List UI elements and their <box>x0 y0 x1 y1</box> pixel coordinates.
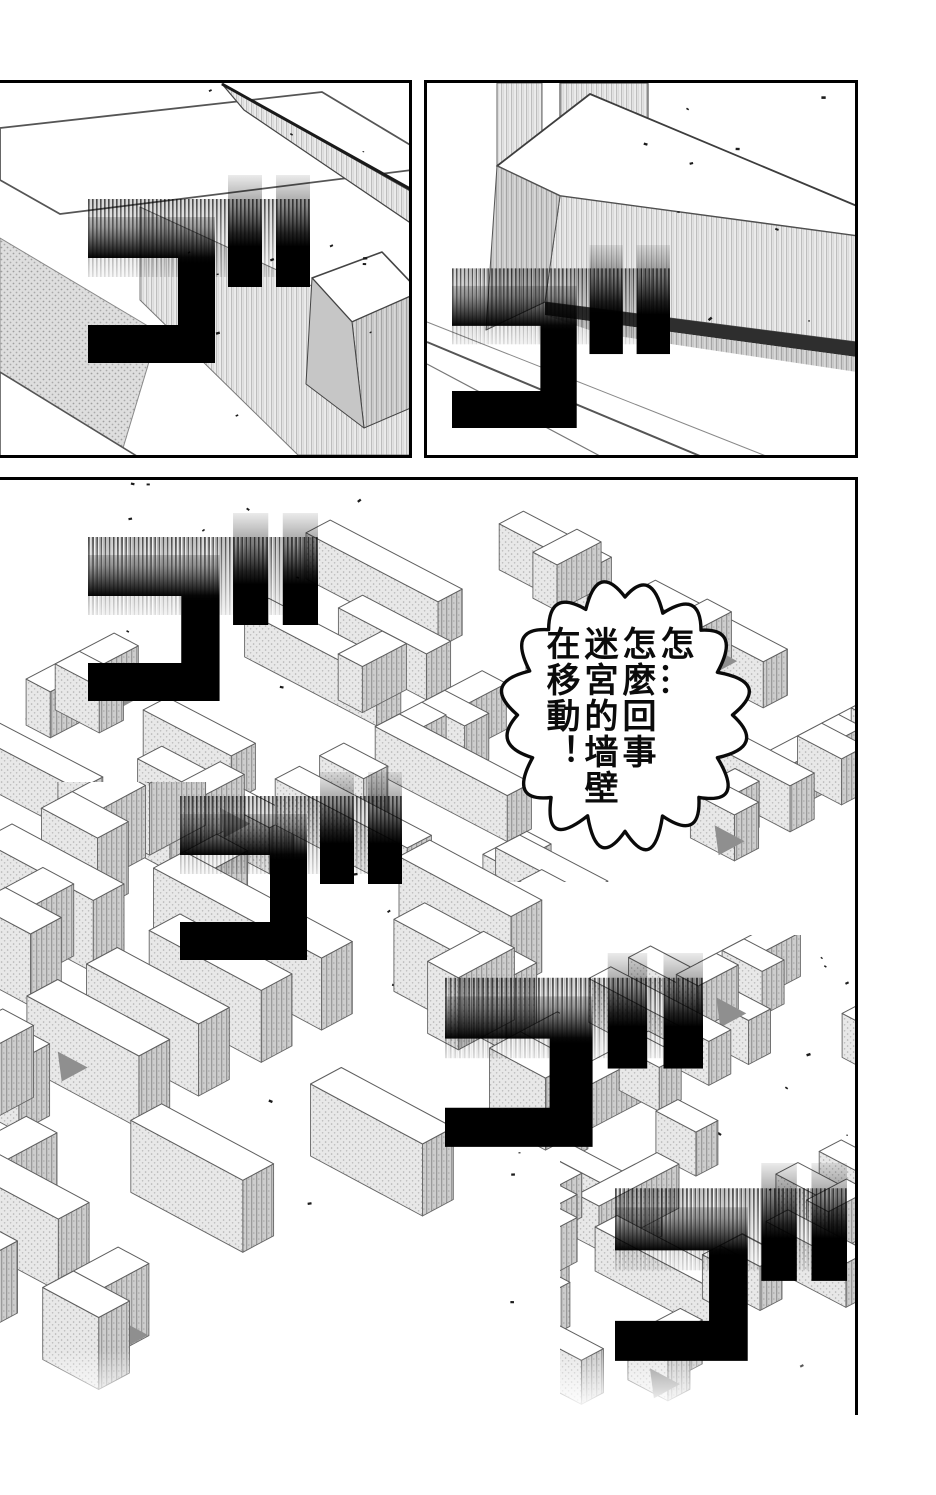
speech-bubble-text: 怎… 怎麼回事 迷宮的墙壁 在移動！ <box>520 626 692 866</box>
sfx-go-rumble-4 <box>180 772 402 962</box>
bubble-line: 迷宮的墙壁 <box>578 626 616 866</box>
sfx-go-rumble-6 <box>615 1163 847 1363</box>
sfx-go-rumble-1 <box>88 175 310 365</box>
bubble-line: 怎… <box>654 626 692 866</box>
sfx-go-rumble-2 <box>452 245 670 430</box>
bubble-line: 在移動！ <box>540 626 578 866</box>
manga-page: 怎… 怎麼回事 迷宮的墙壁 在移動！ <box>0 0 936 1495</box>
sfx-go-rumble-3 <box>88 513 318 703</box>
sfx-go-rumble-5 <box>445 953 703 1149</box>
bubble-line: 怎麼回事 <box>616 626 654 866</box>
